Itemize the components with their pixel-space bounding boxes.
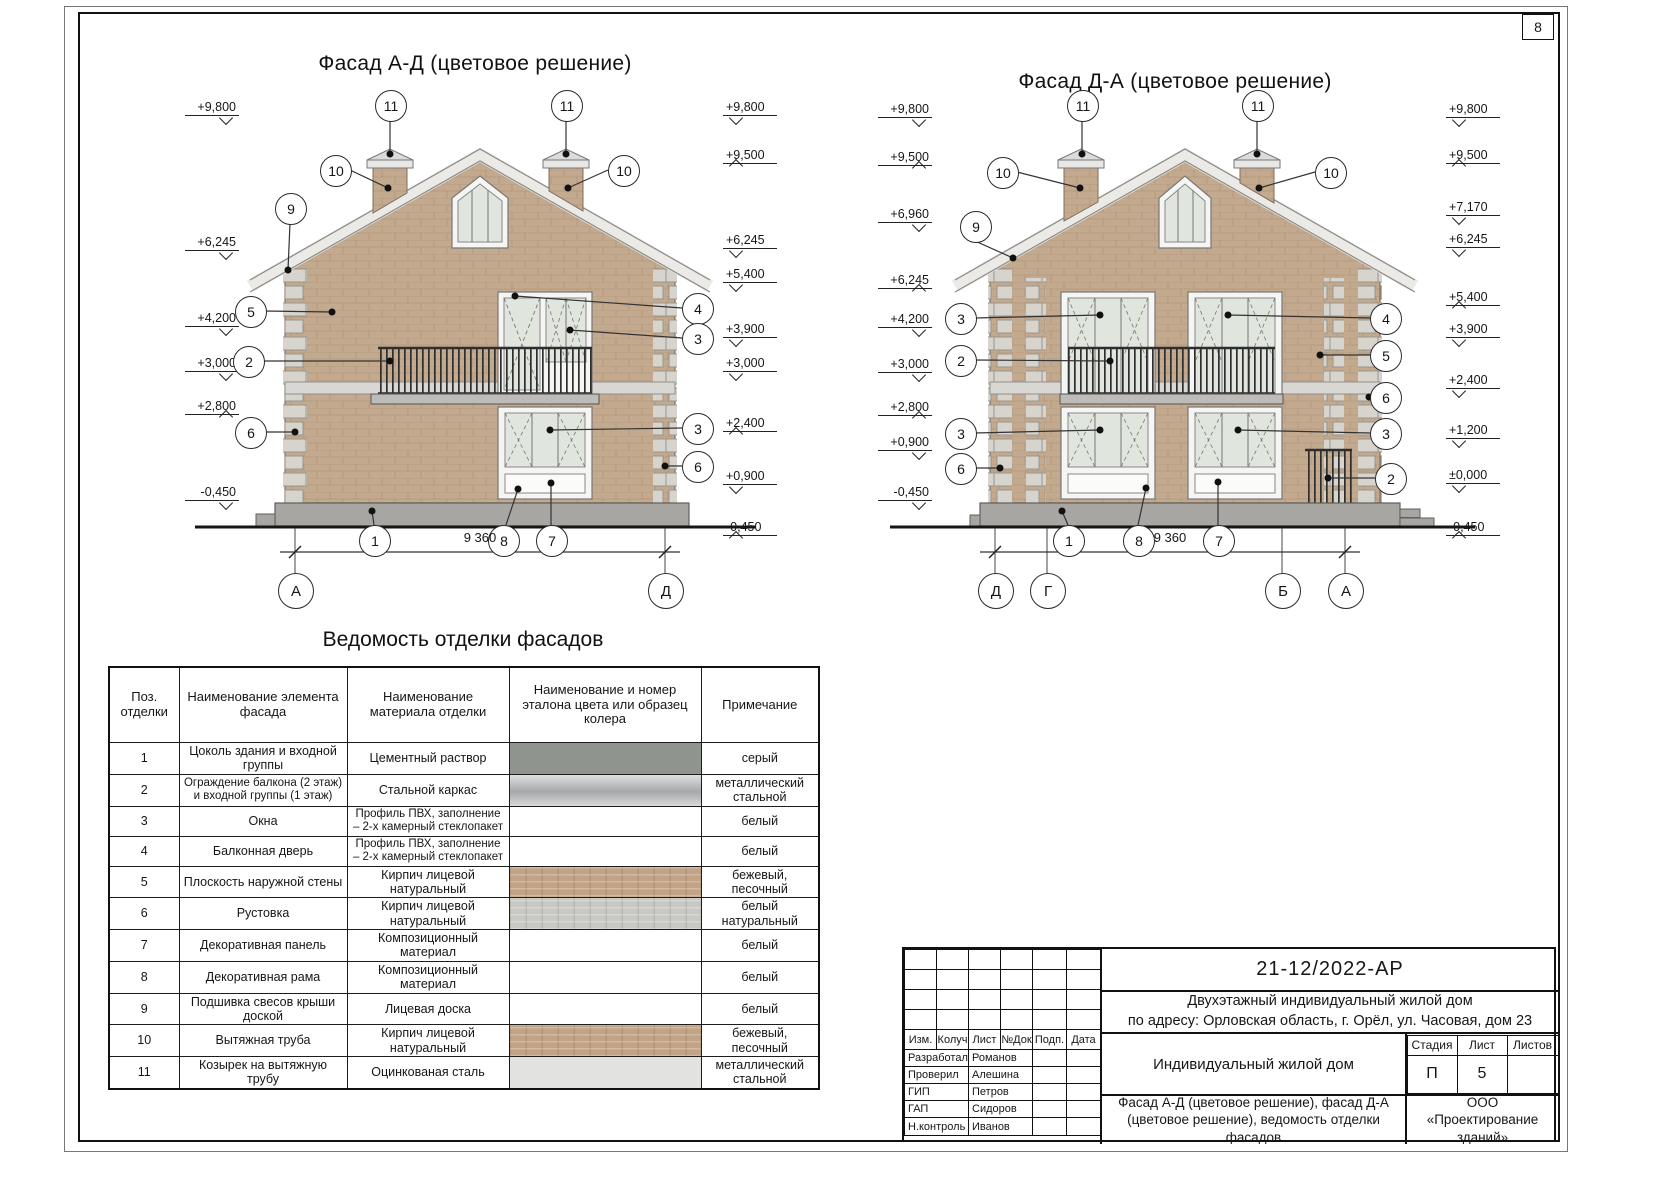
sheet-value: 5 [1457, 1055, 1507, 1093]
table-row: 10 Вытяжная труба Кирпич лицевой натурал… [109, 1025, 819, 1057]
material-cell: Кирпич лицевой натуральный [347, 866, 509, 898]
elevation-mark: +6,960 [858, 207, 932, 233]
signature-row: РазработалРоманов [905, 1050, 1101, 1067]
facade-d-a: Фасад Д-А (цветовое решение) [850, 30, 1560, 640]
callout-bubble: 5 [1370, 340, 1402, 372]
company-name: ООО «Проектирование зданий» [1407, 1096, 1558, 1144]
plinth [970, 503, 1434, 527]
swatch-cell [509, 993, 701, 1025]
elevation-mark: -0,450 [858, 485, 932, 511]
rev-header: №Док [1001, 1030, 1033, 1050]
revision-header-row: Изм. Колуч Лист №Док Подп. Дата [905, 1030, 1101, 1050]
elevation-mark: +7,170 [1446, 200, 1520, 226]
elevation-mark: +9,800 [165, 100, 239, 126]
callout-bubble: 3 [682, 413, 714, 445]
callout-bubble: 11 [1242, 90, 1274, 122]
note-cell: бежевый, песочный [701, 1025, 819, 1057]
callout-bubble: 6 [682, 451, 714, 483]
callout-bubble: 3 [945, 303, 977, 335]
material-cell: Стальной каркас [347, 774, 509, 806]
stage-label: Стадия [1407, 1035, 1457, 1055]
dimension-label: 9 360 [1110, 530, 1230, 545]
element-cell: Козырек на вытяжную трубу [179, 1057, 347, 1089]
swatch-cell [509, 961, 701, 993]
role-cell: Разработал [905, 1050, 969, 1067]
plinth [256, 503, 689, 526]
rev-header: Подп. [1033, 1030, 1067, 1050]
column-header: Поз. отделки [109, 667, 179, 743]
callout-bubble: 9 [275, 193, 307, 225]
element-cell: Балконная дверь [179, 836, 347, 866]
role-cell: ГАП [905, 1101, 969, 1118]
name-cell: Сидоров [969, 1101, 1033, 1118]
callout-bubble: 6 [945, 453, 977, 485]
swatch-cell [509, 1025, 701, 1057]
table-row: 4 Балконная дверь Профиль ПВХ, заполнени… [109, 836, 819, 866]
elevation-mark: +9,500 [1446, 148, 1520, 174]
callout-bubble: 10 [987, 157, 1019, 189]
signature-row: ПроверилАлешина [905, 1067, 1101, 1084]
callout-bubble: 10 [608, 155, 640, 187]
pos-cell: 4 [109, 836, 179, 866]
axis-bubble: Б [1265, 573, 1301, 609]
table-row: 1 Цоколь здания и входной группы Цементн… [109, 743, 819, 775]
object-name: Индивидуальный жилой дом [1100, 1034, 1407, 1096]
element-cell: Вытяжная труба [179, 1025, 347, 1057]
axis-bubble: Д [648, 573, 684, 609]
balcony-slab [371, 394, 599, 404]
stage-value: П [1407, 1055, 1457, 1093]
column-header: Наименование элемента фасада [179, 667, 347, 743]
callout-bubble: 4 [682, 293, 714, 325]
elevation-mark: +9,800 [858, 102, 932, 128]
swatch-cell [509, 930, 701, 962]
drawing-sheet: 8 Фасад А-Д (цветовое решение) [0, 0, 1680, 1187]
project-name: Двухэтажный индивидуальный жилой дом по … [1100, 992, 1558, 1034]
revision-table: Изм. Колуч Лист №Док Подп. Дата Разработ… [904, 949, 1101, 1136]
material-cell: Лицевая доска [347, 993, 509, 1025]
material-cell: Оцинкованая сталь [347, 1057, 509, 1089]
document-number: 21-12/2022-АР [1100, 949, 1558, 992]
swatch-cell [509, 743, 701, 775]
element-cell: Рустовка [179, 898, 347, 930]
elevation-mark: +3,900 [1446, 322, 1520, 348]
table-row: 2 Ограждение балкона (2 этаж) и входной … [109, 774, 819, 806]
role-cell: ГИП [905, 1084, 969, 1101]
table-row: 7 Декоративная панель Композиционный мат… [109, 930, 819, 962]
callout-bubble: 11 [375, 90, 407, 122]
element-cell: Плоскость наружной стены [179, 866, 347, 898]
signature-row: Н.контрольИванов [905, 1118, 1101, 1136]
callout-bubble: 4 [1370, 303, 1402, 335]
callout-bubble: 2 [233, 346, 265, 378]
sheets-value [1507, 1055, 1558, 1093]
elevation-mark: +9,500 [858, 150, 932, 176]
swatch-cell [509, 898, 701, 930]
pos-cell: 5 [109, 866, 179, 898]
finish-schedule-title: Ведомость отделки фасадов [108, 628, 818, 652]
note-cell: белый [701, 930, 819, 962]
note-cell: белый натуральный [701, 898, 819, 930]
facade-a-d: Фасад А-Д (цветовое решение) [90, 30, 800, 640]
callout-bubble: 3 [1370, 418, 1402, 450]
elevation-mark: -0,450 [1446, 520, 1520, 546]
name-cell: Петров [969, 1084, 1033, 1101]
elevation-mark: +3,000 [723, 356, 797, 382]
elevation-mark: +1,200 [1446, 423, 1520, 449]
finish-table: Поз. отделки Наименование элемента фасад… [108, 666, 820, 1090]
material-cell: Композиционный материал [347, 961, 509, 993]
elevation-mark: +4,200 [858, 312, 932, 338]
table-row: 9 Подшивка свесов крыши доской Лицевая д… [109, 993, 819, 1025]
axis-bubble: Д [978, 573, 1014, 609]
pos-cell: 2 [109, 774, 179, 806]
title-block: Изм. Колуч Лист №Док Подп. Дата Разработ… [902, 947, 1556, 1142]
elevation-mark: +0,900 [723, 469, 797, 495]
pos-cell: 7 [109, 930, 179, 962]
elevation-mark: -0,450 [723, 520, 797, 546]
pos-cell: 8 [109, 961, 179, 993]
table-row: 11 Козырек на вытяжную трубу Оцинкованая… [109, 1057, 819, 1089]
decorative-panel [1195, 474, 1275, 493]
callout-bubble: 7 [536, 525, 568, 557]
decorative-panel [1068, 474, 1148, 493]
callout-bubble: 9 [960, 211, 992, 243]
note-cell: бежевый, песочный [701, 866, 819, 898]
callout-bubble: 6 [235, 417, 267, 449]
material-cell: Кирпич лицевой натуральный [347, 898, 509, 930]
elevation-mark: +2,400 [723, 416, 797, 442]
elevation-mark: +5,400 [1446, 290, 1520, 316]
stage-sheet-grid: Стадия Лист Листов П 5 [1407, 1034, 1558, 1096]
pos-cell: 3 [109, 806, 179, 836]
table-row: 8 Декоративная рама Композиционный матер… [109, 961, 819, 993]
elevation-mark: +3,000 [165, 356, 239, 382]
note-cell: белый [701, 836, 819, 866]
element-cell: Ограждение балкона (2 этаж) и входной гр… [179, 774, 347, 806]
balcony-railing [1060, 348, 1283, 404]
role-cell: Проверил [905, 1067, 969, 1084]
dimension-label: 9 360 [420, 530, 540, 545]
elevation-mark: +6,245 [1446, 232, 1520, 258]
callout-bubble: 2 [945, 345, 977, 377]
axis-bubble: А [278, 573, 314, 609]
signature-row: ГАПСидоров [905, 1101, 1101, 1118]
material-cell: Профиль ПВХ, заполнение – 2-х камерный с… [347, 806, 509, 836]
role-cell: Н.контроль [905, 1118, 969, 1136]
table-row: 5 Плоскость наружной стены Кирпич лицево… [109, 866, 819, 898]
rev-header: Колуч [937, 1030, 969, 1050]
callout-bubble: 1 [359, 525, 391, 557]
name-cell: Иванов [969, 1118, 1033, 1136]
elevation-mark: +5,400 [723, 267, 797, 293]
first-floor-window [498, 407, 592, 499]
name-cell: Алешина [969, 1067, 1033, 1084]
balcony-slab [1060, 394, 1283, 404]
axis-bubble: А [1328, 573, 1364, 609]
note-cell: белый [701, 806, 819, 836]
table-row: 3 Окна Профиль ПВХ, заполнение – 2-х кам… [109, 806, 819, 836]
sheet-title: Фасад А-Д (цветовое решение), фасад Д-А … [1100, 1096, 1407, 1144]
material-cell: Профиль ПВХ, заполнение – 2-х камерный с… [347, 836, 509, 866]
elevation-mark: -0,450 [165, 485, 239, 511]
note-cell: металлический стальной [701, 774, 819, 806]
note-cell: серый [701, 743, 819, 775]
rev-header: Изм. [905, 1030, 937, 1050]
elevation-mark: +3,000 [858, 357, 932, 383]
rev-header: Дата [1067, 1030, 1101, 1050]
callout-bubble: 1 [1053, 525, 1085, 557]
callout-bubble: 11 [551, 90, 583, 122]
column-header: Примечание [701, 667, 819, 743]
element-cell: Цоколь здания и входной группы [179, 743, 347, 775]
elevation-mark: +9,500 [723, 148, 797, 174]
swatch-cell [509, 866, 701, 898]
pos-cell: 6 [109, 898, 179, 930]
pos-cell: 1 [109, 743, 179, 775]
swatch-cell [509, 774, 701, 806]
elevation-mark: +2,800 [165, 399, 239, 425]
material-cell: Кирпич лицевой натуральный [347, 1025, 509, 1057]
material-cell: Цементный раствор [347, 743, 509, 775]
note-cell: белый [701, 993, 819, 1025]
element-cell: Подшивка свесов крыши доской [179, 993, 347, 1025]
callout-bubble: 5 [235, 296, 267, 328]
pos-cell: 10 [109, 1025, 179, 1057]
callout-bubble: 6 [1370, 382, 1402, 414]
column-header: Наименование материала отделки [347, 667, 509, 743]
elevation-mark: +2,400 [1446, 373, 1520, 399]
element-cell: Окна [179, 806, 347, 836]
sheets-label: Листов [1507, 1035, 1558, 1055]
swatch-cell [509, 836, 701, 866]
balcony-railing [371, 348, 599, 404]
header-row: Поз. отделки Наименование элемента фасад… [109, 667, 819, 743]
column-header: Наименование и номер эталона цвета или о… [509, 667, 701, 743]
element-cell: Декоративная панель [179, 930, 347, 962]
swatch-cell [509, 806, 701, 836]
pos-cell: 9 [109, 993, 179, 1025]
callout-bubble: 2 [1375, 463, 1407, 495]
pos-cell: 11 [109, 1057, 179, 1089]
table-row: 6 Рустовка Кирпич лицевой натуральный бе… [109, 898, 819, 930]
finish-schedule: Ведомость отделки фасадов Поз. отделки Н… [108, 628, 818, 1090]
name-cell: Романов [969, 1050, 1033, 1067]
elevation-mark: +6,245 [858, 273, 932, 299]
elevation-mark: +4,200 [165, 311, 239, 337]
elevation-mark: +9,800 [723, 100, 797, 126]
elevation-mark: +0,900 [858, 435, 932, 461]
callout-bubble: 3 [945, 418, 977, 450]
elevation-mark: +3,900 [723, 322, 797, 348]
elevation-mark: ±0,000 [1446, 468, 1520, 494]
rev-header: Лист [969, 1030, 1001, 1050]
note-cell: белый [701, 961, 819, 993]
elevation-mark: +6,245 [723, 233, 797, 259]
swatch-cell [509, 1057, 701, 1089]
material-cell: Композиционный материал [347, 930, 509, 962]
axis-bubble: Г [1030, 573, 1066, 609]
signature-row: ГИППетров [905, 1084, 1101, 1101]
elevation-mark: +6,245 [165, 235, 239, 261]
elevation-mark: +9,800 [1446, 102, 1520, 128]
note-cell: металлический стальной [701, 1057, 819, 1089]
callout-bubble: 11 [1067, 90, 1099, 122]
callout-bubble: 3 [682, 323, 714, 355]
element-cell: Декоративная рама [179, 961, 347, 993]
elevation-mark: +2,800 [858, 400, 932, 426]
sheet-label: Лист [1457, 1035, 1507, 1055]
callout-bubble: 10 [1315, 157, 1347, 189]
callout-bubble: 10 [320, 155, 352, 187]
